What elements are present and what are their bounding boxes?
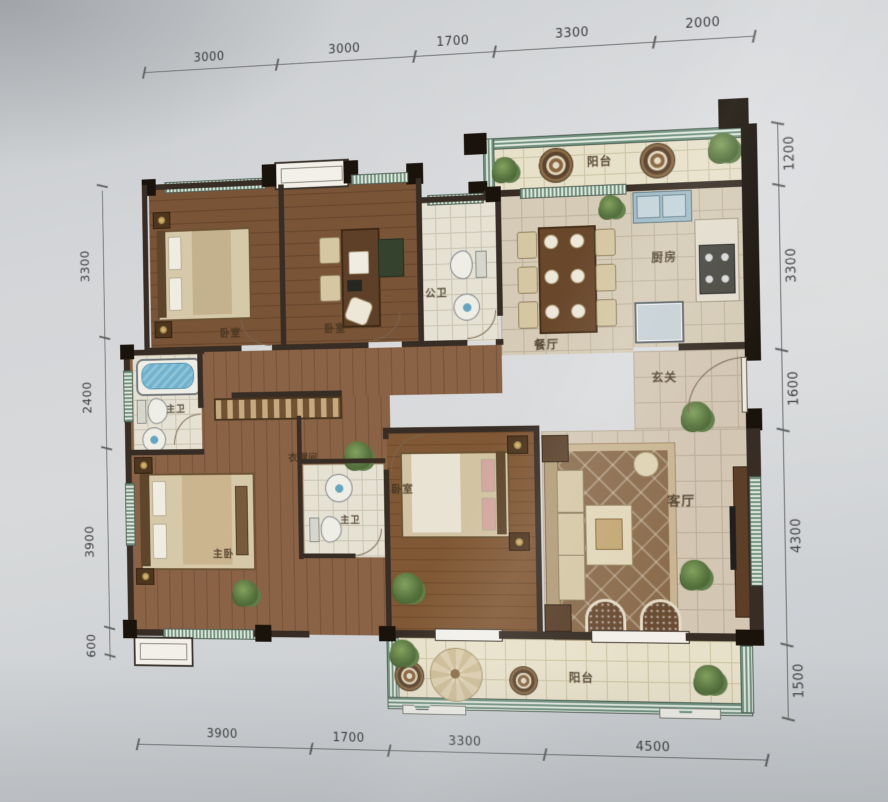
room-label-master-bedroom: 主卧 xyxy=(213,546,235,561)
dim-left-1: 3300 xyxy=(79,246,93,287)
wall xyxy=(496,339,504,345)
room-label-master-bath-a: 主卫 xyxy=(166,401,186,415)
wall xyxy=(499,631,543,639)
bay-window xyxy=(274,159,349,191)
dim-top-1: 3000 xyxy=(190,49,229,65)
dim-right-3: 1600 xyxy=(786,366,802,410)
bed-headboard xyxy=(156,230,166,317)
wall-chunk xyxy=(745,348,761,360)
kitchen-sink-basin xyxy=(662,194,686,218)
dim-bottom-3: 3300 xyxy=(444,734,486,749)
dim-bottom-1: 3900 xyxy=(203,727,242,742)
round-side-table xyxy=(633,451,659,477)
toilet-tank xyxy=(309,518,319,543)
room-label-foyer: 玄关 xyxy=(651,368,677,385)
bed-headboard xyxy=(496,451,507,534)
coffee-table-tray xyxy=(595,518,623,549)
dim-bottom-4: 4500 xyxy=(631,739,675,755)
wall-chunk xyxy=(736,630,765,646)
wall-chunk xyxy=(464,133,487,155)
window-band xyxy=(123,370,133,422)
side-table xyxy=(541,435,568,463)
window-band xyxy=(125,483,136,546)
dim-right-5: 1500 xyxy=(791,659,807,703)
wall-chunk xyxy=(746,408,763,430)
nightstand xyxy=(509,532,530,550)
desk-monitor xyxy=(349,251,370,274)
wall-chunk xyxy=(485,186,500,202)
tv xyxy=(729,506,736,570)
dim-top-5: 2000 xyxy=(681,15,725,33)
chair xyxy=(319,237,340,264)
dimension-line-left xyxy=(102,191,111,661)
exterior-right-wall xyxy=(741,123,761,353)
nightstand xyxy=(154,321,172,338)
bathroom-sink xyxy=(325,474,353,503)
pillow xyxy=(481,459,496,492)
bed-blanket xyxy=(411,454,461,533)
wall-chunk xyxy=(255,625,271,642)
kitchen-sink-basin xyxy=(636,195,660,219)
balcony-bottom-railing-right xyxy=(740,645,754,713)
wall-chunk xyxy=(120,344,134,359)
room-label-balcony-bottom: 阳台 xyxy=(569,669,595,686)
wardrobe-row xyxy=(214,396,342,421)
room-label-bedroom-c: 卧室 xyxy=(391,481,414,496)
bed-headboard xyxy=(140,474,151,567)
dimension-tick xyxy=(97,184,108,188)
dimension-tick xyxy=(752,30,756,43)
floor-plan: 3000 3000 1700 3300 2000 3900 1700 3300 … xyxy=(77,1,842,786)
bed-bench xyxy=(235,486,249,555)
room-label-guest-bath: 公卫 xyxy=(425,285,448,301)
nightstand xyxy=(134,457,153,474)
room-label-bedroom-a: 卧室 xyxy=(220,325,242,341)
room-label-bedroom-b: 卧室 xyxy=(324,320,346,336)
floor-medallion xyxy=(509,666,538,696)
toilet-tank xyxy=(475,251,487,278)
balcony-edge-notch xyxy=(402,705,466,716)
pillow xyxy=(152,481,167,516)
dim-top-4: 3300 xyxy=(551,25,594,42)
entry-door-leaf xyxy=(741,357,748,413)
side-table xyxy=(544,604,571,632)
room-label-master-bath-b: 主卫 xyxy=(340,512,360,526)
toilet-tank xyxy=(137,400,147,424)
dining-chair xyxy=(517,231,538,259)
dimension-line-right xyxy=(777,122,789,719)
pillow xyxy=(153,524,168,559)
room-label-living: 客厅 xyxy=(667,491,695,510)
wall xyxy=(303,553,356,558)
dim-right-4: 4300 xyxy=(789,513,805,557)
dimension-tick xyxy=(765,754,769,767)
pillow xyxy=(481,498,496,531)
room-label-kitchen: 厨房 xyxy=(651,248,677,266)
dim-right-1: 1200 xyxy=(782,131,798,176)
parasol-center xyxy=(450,669,460,679)
room-label-dining: 餐厅 xyxy=(534,336,559,353)
dim-left-4: 600 xyxy=(85,625,99,666)
refrigerator xyxy=(634,301,684,344)
potted-plant xyxy=(680,560,710,590)
dim-left-3: 3900 xyxy=(84,522,98,562)
potted-plant xyxy=(393,573,423,604)
dim-top-2: 3000 xyxy=(324,41,365,58)
wall xyxy=(301,458,385,464)
pillow xyxy=(169,277,183,311)
dining-chair xyxy=(595,228,616,256)
wall-chunk xyxy=(262,164,277,187)
sofa-seats xyxy=(556,470,585,601)
potted-plant xyxy=(390,639,416,666)
dim-left-2: 2400 xyxy=(81,377,95,418)
bay-window xyxy=(134,636,194,666)
potted-plant xyxy=(233,580,258,606)
dimension-tick xyxy=(782,716,795,721)
wall xyxy=(383,428,389,440)
dining-chair xyxy=(595,264,616,292)
green-rug xyxy=(378,238,405,277)
dim-bottom-2: 1700 xyxy=(328,731,369,746)
bed-blanket xyxy=(192,230,232,315)
wall xyxy=(197,354,203,408)
wall-chunk xyxy=(123,620,137,639)
dim-right-2: 3300 xyxy=(784,243,800,288)
dining-chair xyxy=(596,299,617,327)
room-label-balcony-top: 阳台 xyxy=(587,152,613,170)
dim-top-3: 1700 xyxy=(432,33,474,50)
nightstand xyxy=(507,435,528,454)
bathtub-water xyxy=(141,362,194,389)
nightstand xyxy=(136,568,155,585)
sliding-door xyxy=(591,630,690,644)
desk-chairmat xyxy=(347,280,362,292)
sliding-door xyxy=(435,628,503,641)
pillow xyxy=(168,236,182,270)
potted-plant xyxy=(694,665,725,695)
chair xyxy=(320,275,341,302)
wall xyxy=(130,449,204,455)
stove xyxy=(699,244,736,295)
dining-chair xyxy=(518,301,539,329)
window-band xyxy=(749,476,763,586)
wall-chunk xyxy=(379,626,396,641)
potted-plant xyxy=(344,441,372,470)
nightstand xyxy=(153,212,171,229)
wall xyxy=(543,631,593,639)
toilet xyxy=(450,250,473,280)
dining-chair xyxy=(517,266,538,294)
